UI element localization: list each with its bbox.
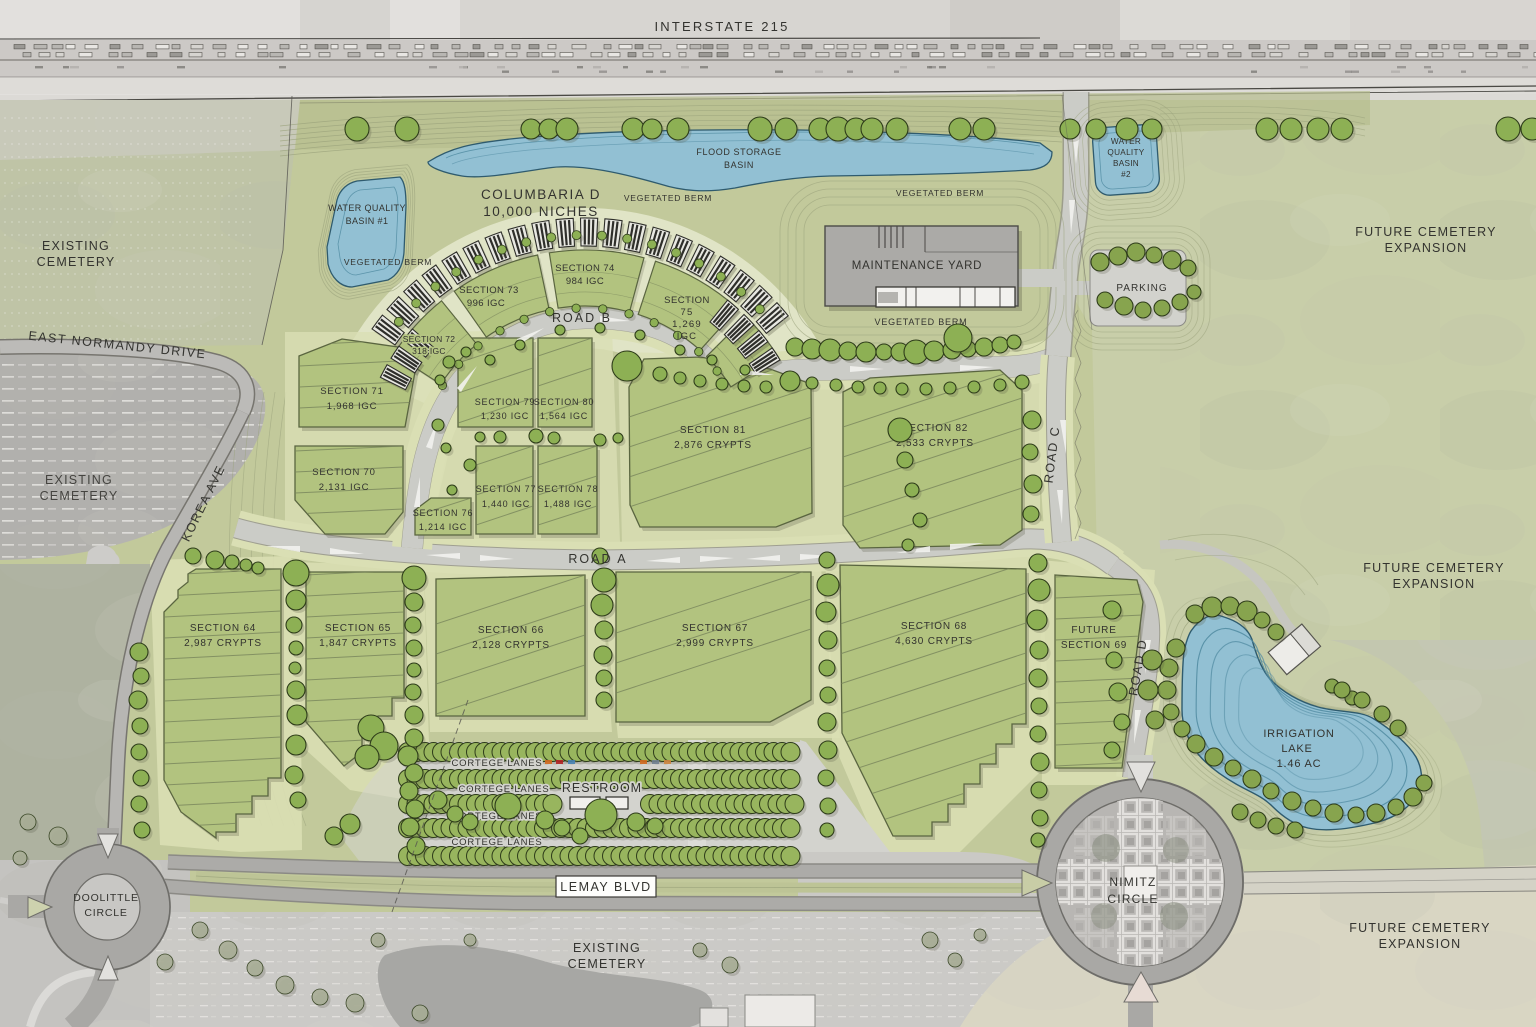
svg-text:2,987 CRYPTS: 2,987 CRYPTS xyxy=(184,638,262,649)
svg-text:SECTION 74: SECTION 74 xyxy=(555,263,614,274)
svg-text:#2: #2 xyxy=(1121,170,1131,179)
svg-text:SECTION 71: SECTION 71 xyxy=(320,386,383,397)
svg-text:CORTEGE LANES: CORTEGE LANES xyxy=(452,758,543,769)
svg-text:VEGETATED BERM: VEGETATED BERM xyxy=(624,193,712,203)
svg-text:IRRIGATION: IRRIGATION xyxy=(1263,728,1334,740)
svg-text:1,488 IGC: 1,488 IGC xyxy=(544,499,592,509)
svg-text:2,876 CRYPTS: 2,876 CRYPTS xyxy=(674,440,752,451)
svg-text:CIRCLE: CIRCLE xyxy=(84,907,127,919)
svg-text:CIRCLE: CIRCLE xyxy=(1107,892,1158,906)
svg-text:FLOOD STORAGE: FLOOD STORAGE xyxy=(696,147,781,157)
svg-text:SECTION: SECTION xyxy=(664,295,710,306)
svg-text:1,214 IGC: 1,214 IGC xyxy=(419,522,467,532)
svg-text:FUTURE CEMETERY: FUTURE CEMETERY xyxy=(1363,561,1504,575)
svg-text:75: 75 xyxy=(681,307,694,318)
svg-text:NIMITZ: NIMITZ xyxy=(1109,875,1156,889)
svg-text:LAKE: LAKE xyxy=(1281,743,1312,755)
svg-text:SECTION 81: SECTION 81 xyxy=(680,425,746,436)
svg-text:ROAD A: ROAD A xyxy=(568,552,627,566)
svg-text:SECTION 67: SECTION 67 xyxy=(682,623,748,634)
svg-text:318 IGC: 318 IGC xyxy=(412,346,446,356)
svg-text:FUTURE CEMETERY: FUTURE CEMETERY xyxy=(1349,921,1490,935)
svg-text:SECTION 80: SECTION 80 xyxy=(534,397,595,407)
svg-text:996 IGC: 996 IGC xyxy=(467,298,505,309)
svg-text:SECTION 76: SECTION 76 xyxy=(413,508,474,518)
svg-text:10,000 NICHES: 10,000 NICHES xyxy=(483,204,599,219)
svg-text:BASIN #1: BASIN #1 xyxy=(346,216,389,226)
svg-text:SECTION 78: SECTION 78 xyxy=(538,484,599,494)
svg-text:COLUMBARIA D: COLUMBARIA D xyxy=(481,187,601,202)
svg-text:SECTION 77: SECTION 77 xyxy=(476,484,537,494)
svg-text:FUTURE: FUTURE xyxy=(1071,625,1116,636)
svg-text:EXPANSION: EXPANSION xyxy=(1385,241,1468,255)
svg-text:EXPANSION: EXPANSION xyxy=(1393,577,1476,591)
svg-text:LEMAY BLVD: LEMAY BLVD xyxy=(560,880,651,894)
svg-text:IGC: IGC xyxy=(677,331,698,342)
svg-text:1,968 IGC: 1,968 IGC xyxy=(327,401,378,412)
svg-text:1,440 IGC: 1,440 IGC xyxy=(482,499,530,509)
svg-text:DOOLITTLE: DOOLITTLE xyxy=(73,892,139,904)
svg-text:4,630 CRYPTS: 4,630 CRYPTS xyxy=(895,636,973,647)
svg-text:VEGETATED BERM: VEGETATED BERM xyxy=(344,257,432,267)
svg-text:1.46 AC: 1.46 AC xyxy=(1277,758,1322,770)
svg-text:MAINTENANCE YARD: MAINTENANCE YARD xyxy=(852,260,983,272)
svg-text:EXISTING: EXISTING xyxy=(42,239,110,253)
svg-text:SECTION 66: SECTION 66 xyxy=(478,625,544,636)
svg-text:2,128 CRYPTS: 2,128 CRYPTS xyxy=(472,640,550,651)
svg-text:SECTION 72: SECTION 72 xyxy=(403,334,456,344)
svg-text:SECTION 65: SECTION 65 xyxy=(325,623,391,634)
svg-text:CEMETERY: CEMETERY xyxy=(568,957,647,971)
svg-text:984 IGC: 984 IGC xyxy=(566,276,604,287)
svg-text:2,131 IGC: 2,131 IGC xyxy=(319,482,370,493)
svg-text:EXISTING: EXISTING xyxy=(45,473,113,487)
svg-text:1,230 IGC: 1,230 IGC xyxy=(481,411,529,421)
svg-text:ROAD B: ROAD B xyxy=(552,311,612,325)
svg-text:RESTROOM: RESTROOM xyxy=(562,781,642,795)
svg-text:2,999 CRYPTS: 2,999 CRYPTS xyxy=(676,638,754,649)
svg-text:WATER QUALITY: WATER QUALITY xyxy=(328,203,406,213)
svg-text:EXPANSION: EXPANSION xyxy=(1379,937,1462,951)
svg-text:QUALITY: QUALITY xyxy=(1107,148,1144,157)
svg-text:PARKING: PARKING xyxy=(1116,283,1167,294)
svg-text:1,269: 1,269 xyxy=(672,319,702,330)
svg-text:SECTION 73: SECTION 73 xyxy=(459,285,518,296)
svg-text:SECTION 69: SECTION 69 xyxy=(1061,640,1127,651)
svg-text:FUTURE CEMETERY: FUTURE CEMETERY xyxy=(1355,225,1496,239)
svg-text:EXISTING: EXISTING xyxy=(573,941,641,955)
svg-text:1,847 CRYPTS: 1,847 CRYPTS xyxy=(319,638,397,649)
svg-text:INTERSTATE 215: INTERSTATE 215 xyxy=(654,19,789,34)
svg-text:BASIN: BASIN xyxy=(1113,159,1139,168)
svg-text:SECTION 79: SECTION 79 xyxy=(475,397,536,407)
svg-text:1,564 IGC: 1,564 IGC xyxy=(540,411,588,421)
svg-text:SECTION 70: SECTION 70 xyxy=(312,467,375,478)
svg-text:SECTION 64: SECTION 64 xyxy=(190,623,256,634)
svg-text:BASIN: BASIN xyxy=(724,160,754,170)
svg-text:VEGETATED BERM: VEGETATED BERM xyxy=(896,188,984,198)
svg-text:CORTEGE LANES: CORTEGE LANES xyxy=(452,837,543,848)
svg-text:CEMETERY: CEMETERY xyxy=(37,255,116,269)
svg-text:CEMETERY: CEMETERY xyxy=(40,489,119,503)
svg-text:SECTION 68: SECTION 68 xyxy=(901,621,967,632)
